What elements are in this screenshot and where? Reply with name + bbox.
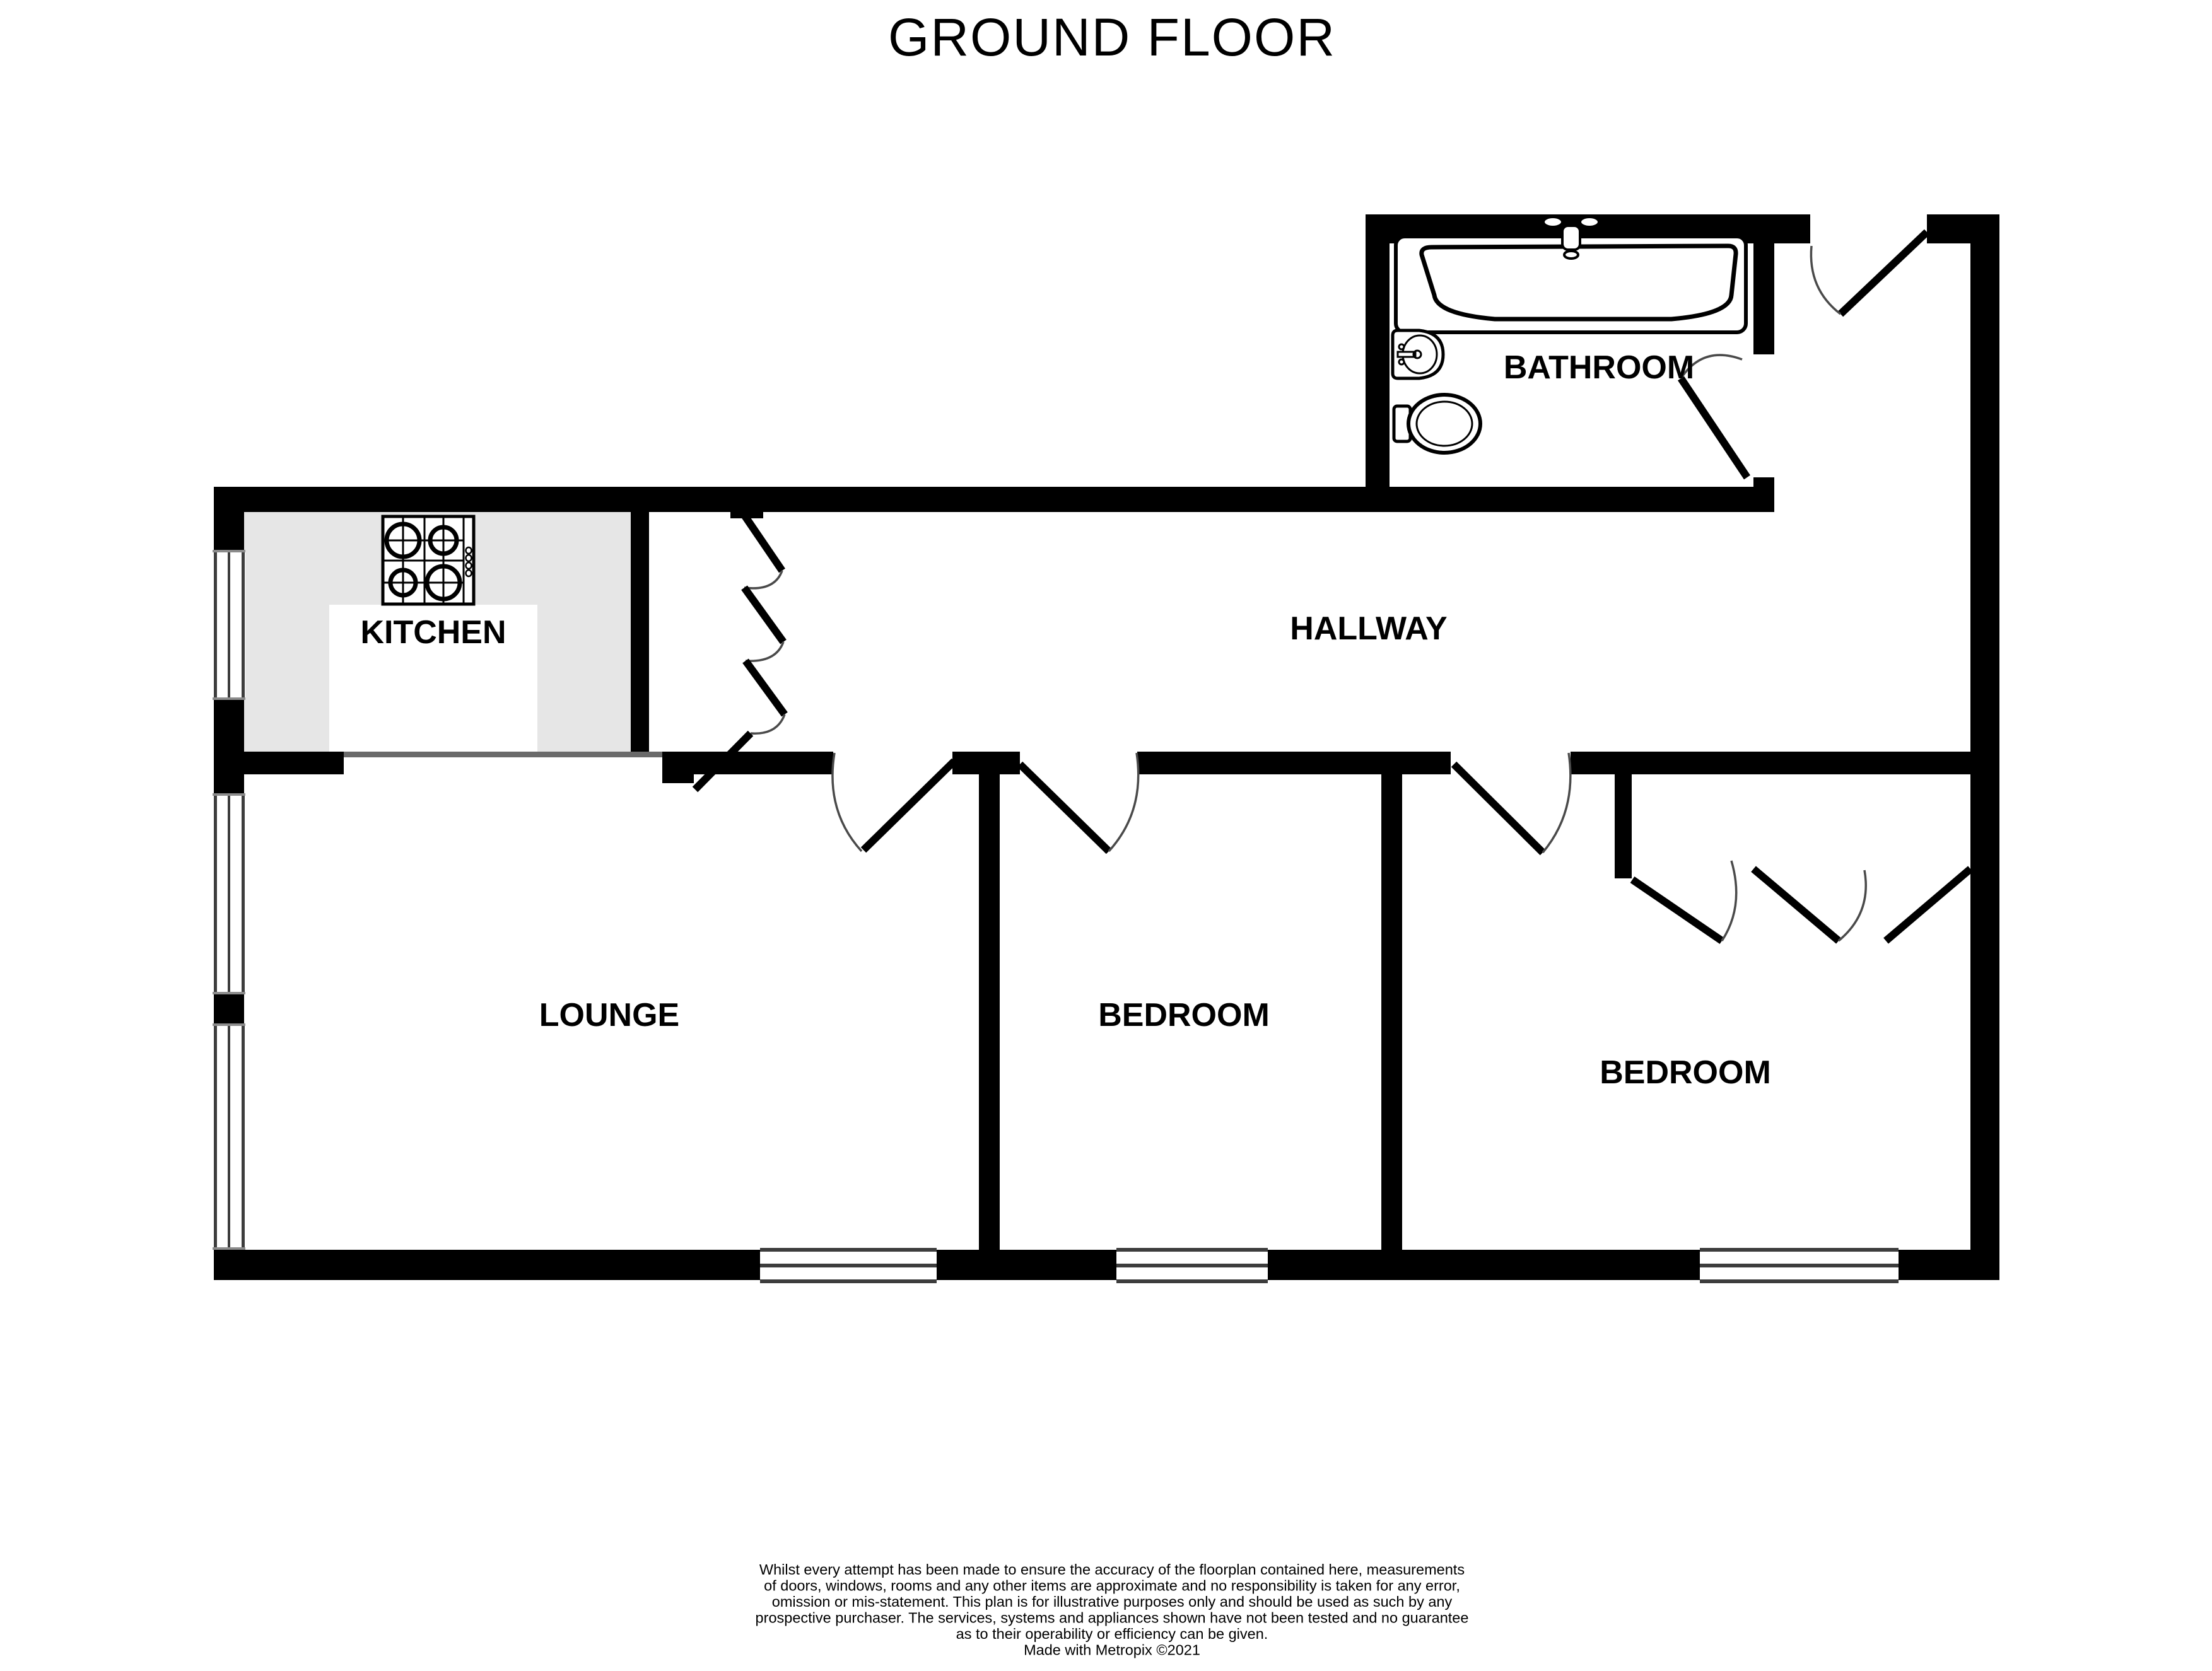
toilet-icon: [1394, 395, 1480, 453]
lounge-bedroom-divider-wall: [979, 752, 1000, 1250]
floorplan-canvas: GROUND FLOOR: [0, 0, 2212, 1671]
stove-hob-icon: [383, 516, 474, 604]
disclaimer-line: omission or mis-statement. This plan is …: [772, 1593, 1453, 1610]
lounge-window-bottom-icon: [760, 1247, 937, 1283]
disclaimer-line: Whilst every attempt has been made to en…: [759, 1561, 1465, 1578]
page-title: GROUND FLOOR: [888, 8, 1336, 67]
bedroom-right-window-icon: [1700, 1247, 1899, 1283]
room-label-lounge: LOUNGE: [539, 997, 679, 1033]
room-label-bedroom-middle: BEDROOM: [1098, 997, 1270, 1033]
room-label-hallway: HALLWAY: [1290, 610, 1447, 647]
folding-door-icon: [695, 513, 785, 789]
metropix-credit: Made with Metropix ©2021: [1024, 1642, 1200, 1658]
pedestal-sink-icon: [1393, 330, 1443, 378]
floorplan-page: GROUND FLOOR: [0, 0, 2212, 1671]
bedroom-right-door-swing-icon: [1454, 753, 1571, 853]
disclaimer: Whilst every attempt has been made to en…: [756, 1561, 1469, 1658]
wardrobe-stub-wall: [1615, 774, 1632, 878]
room-label-kitchen: KITCHEN: [360, 614, 506, 651]
disclaimer-line: as to their operability or efficiency ca…: [956, 1626, 1268, 1642]
lounge-door-swing-icon: [833, 753, 954, 851]
lounge-window-left-1-icon: [213, 793, 245, 994]
kitchen-lounge-open-boundary: [344, 752, 664, 757]
bedroom-middle-window-icon: [1116, 1247, 1268, 1283]
entrance-door-swing-icon: [1811, 232, 1927, 314]
disclaimer-line: prospective purchaser. The services, sys…: [756, 1610, 1469, 1626]
bedroom-bedroom-divider-wall: [1381, 752, 1402, 1250]
wardrobe-doors-icon: [1632, 861, 1970, 941]
lounge-window-left-2-icon: [213, 1023, 245, 1250]
disclaimer-line: of doors, windows, rooms and any other i…: [764, 1578, 1460, 1594]
kitchen-window-icon: [213, 550, 245, 700]
bedroom-middle-door-swing-icon: [1020, 753, 1138, 851]
room-label-bedroom-right: BEDROOM: [1600, 1054, 1771, 1091]
room-label-bathroom: BATHROOM: [1504, 349, 1694, 386]
